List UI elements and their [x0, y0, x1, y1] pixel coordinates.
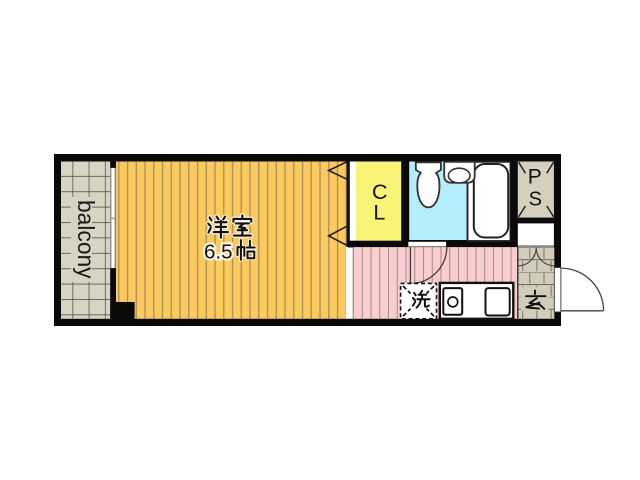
svg-text:L: L — [373, 200, 385, 224]
svg-text:6.5: 6.5 — [204, 241, 233, 264]
svg-text:S: S — [529, 189, 542, 211]
svg-text:P: P — [528, 166, 542, 189]
svg-text:balcony: balcony — [73, 200, 99, 279]
